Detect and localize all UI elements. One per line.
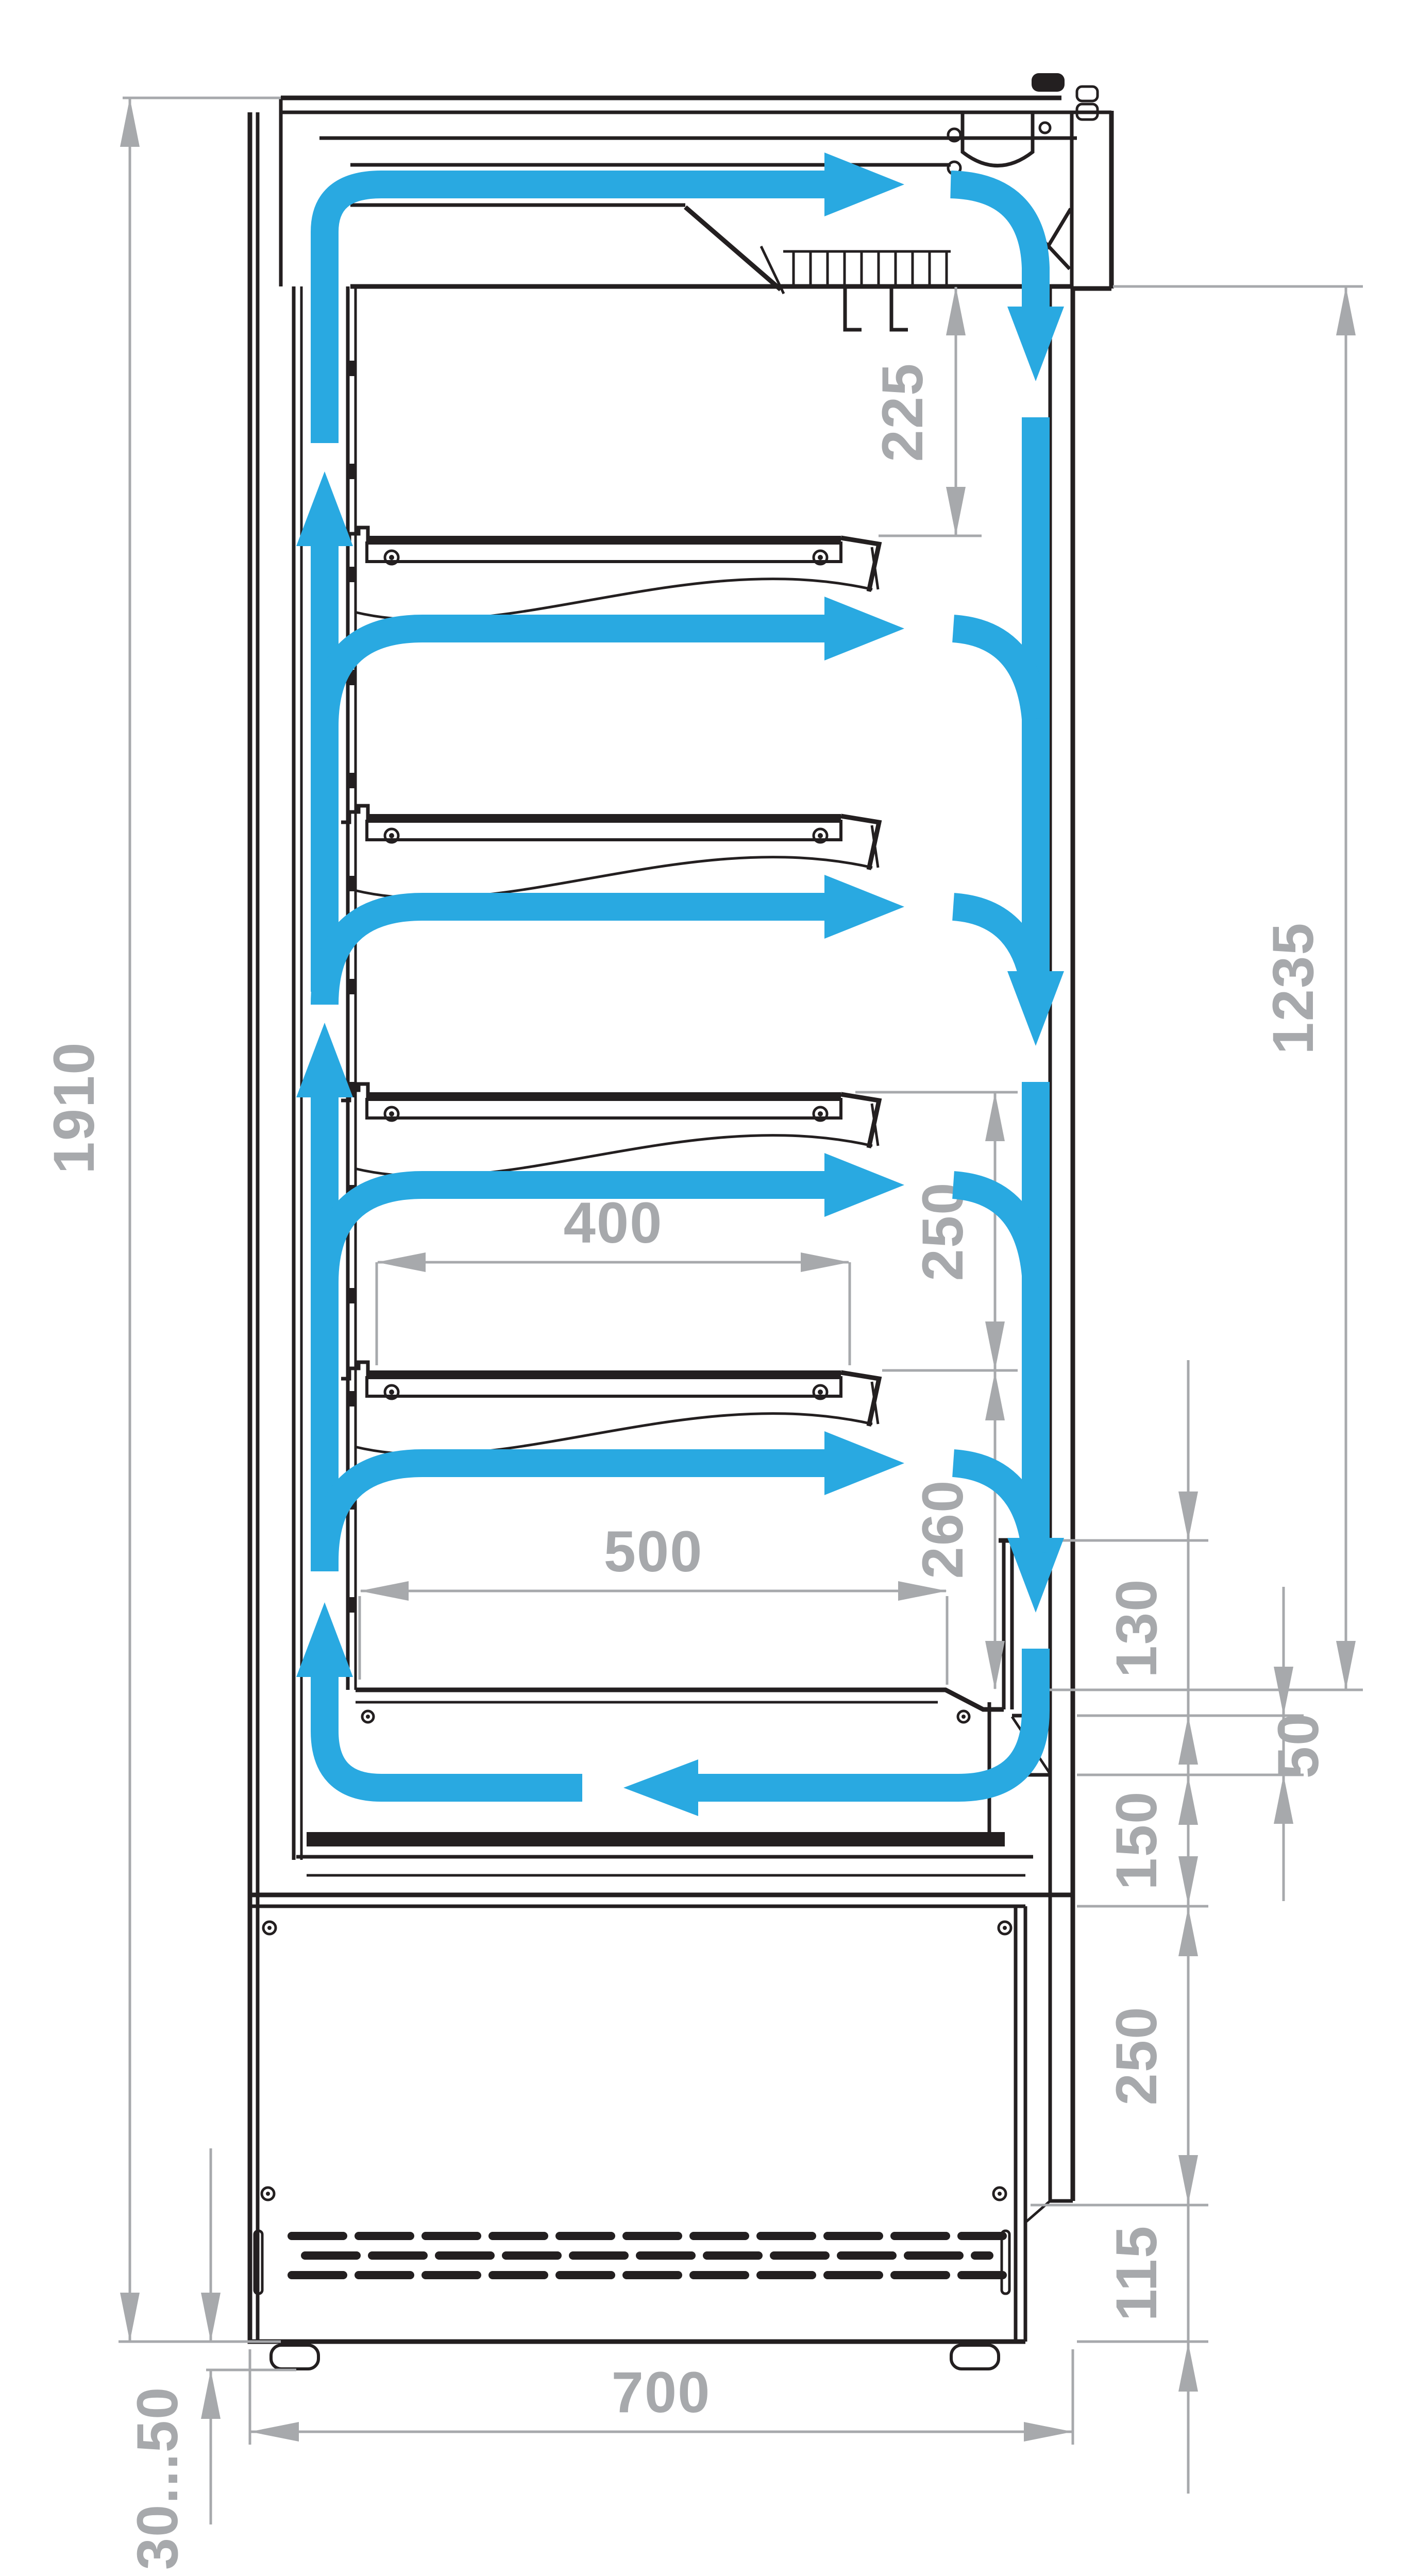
airflow-up-arrow: [296, 1602, 353, 1677]
shelf-cable: [355, 579, 872, 620]
airflow-down-arrow: [1007, 307, 1064, 381]
dim-overall-height: 1910: [42, 98, 281, 2342]
dimension-arrow: [120, 98, 140, 147]
dim-label-base-height: 250: [1104, 2006, 1169, 2106]
dim-label-feet-range: 30...50: [125, 2386, 190, 2570]
dim-label-overall-height: 1910: [42, 1041, 106, 1174]
airflow-right-arrow: [824, 597, 904, 660]
dim-label-front-riser: 130: [1104, 1579, 1169, 1678]
dimension-annotations: 1910 30...50 700 225: [42, 98, 1363, 2570]
dimension-arrow: [801, 1252, 850, 1272]
dim-label-front-sill: 50: [1266, 1713, 1330, 1779]
dim-vent-panel: 115: [1104, 2225, 1198, 2392]
dim-label-well-depth: 500: [604, 1519, 703, 1584]
back-wall-air-channel: [250, 112, 356, 1906]
airflow-curtain-bottom: [698, 1649, 1036, 1788]
dim-label-overall-depth: 700: [612, 2360, 711, 2425]
shelf-1: [341, 528, 879, 620]
dim-bottom-clearance: 260: [910, 1371, 1005, 1690]
dimension-arrow: [898, 1581, 947, 1601]
base-plinth: [250, 1895, 1073, 2369]
dim-label-shelf-depth: 400: [564, 1191, 663, 1255]
dim-front-riser: 130: [1104, 1360, 1198, 2494]
gasket-profile: [1077, 87, 1098, 101]
dim-label-bottom-clearance: 260: [910, 1480, 975, 1579]
shelf-2: [341, 806, 879, 898]
dimension-arrow: [1178, 1907, 1198, 1956]
dim-label-canopy-to-shelf: 225: [870, 363, 935, 462]
shelf-3: [341, 1084, 879, 1176]
dimension-arrow: [250, 2422, 299, 2442]
dim-opening-height: 1235: [1028, 286, 1363, 1690]
airflow-right-arrow: [824, 1153, 904, 1217]
screw-hole: [1040, 123, 1050, 133]
dimension-arrow: [360, 1581, 409, 1601]
dim-label-vent-panel: 115: [1104, 2225, 1169, 2321]
dim-shelf-spacing: 250: [855, 1092, 1018, 1370]
top-corner-cap: [1032, 73, 1065, 92]
drawing-page: 1910 30...50 700 225: [0, 0, 1417, 2576]
dimension-arrow: [985, 1092, 1005, 1141]
dimension-arrow: [1274, 1775, 1293, 1824]
dim-well-depth: 500: [360, 1519, 947, 1685]
dimension-arrow: [946, 487, 966, 536]
dimension-arrow: [201, 2370, 221, 2419]
airflow-left-arrow: [623, 1759, 698, 1816]
dimension-arrow: [946, 286, 966, 335]
adjustable-foot: [951, 2345, 999, 2369]
dimension-arrow: [120, 2293, 140, 2342]
shelf-cable: [355, 1414, 872, 1455]
dim-base-height: 250: [1104, 1907, 1198, 2204]
dimension-arrow: [1178, 1776, 1198, 1825]
front-riser: [999, 1540, 1017, 1709]
dimension-arrow: [985, 1371, 1005, 1420]
basin-floor: [307, 1832, 1005, 1846]
technical-drawing: 1910 30...50 700 225: [0, 0, 1417, 2576]
shelf-cable: [355, 857, 872, 899]
dimension-arrow: [985, 1641, 1005, 1690]
front-outer-frame: [1073, 111, 1111, 289]
air-outlet-honeycomb: [783, 251, 951, 284]
dim-label-opening-height: 1235: [1261, 922, 1325, 1054]
dim-overall-depth: 700: [250, 2349, 1073, 2445]
dimension-arrow: [1178, 1856, 1198, 1905]
shelf-body: [367, 1378, 841, 1396]
airflow-right-arrow: [824, 1431, 904, 1495]
shelf-body: [367, 1099, 841, 1118]
airflow-channel-top-band: [325, 184, 824, 443]
hanger-hook: [891, 287, 908, 330]
shelf-cable: [355, 1136, 872, 1177]
adjustable-foot: [271, 2345, 318, 2369]
shelf-body: [367, 543, 841, 562]
dim-canopy-to-shelf: 225: [870, 286, 982, 536]
airflow-right-arrow: [824, 875, 904, 939]
airflow-return-band: [325, 1677, 582, 1788]
air-deflector-flap: [685, 207, 781, 290]
shelf-4: [341, 1362, 879, 1454]
dim-label-well-section: 150: [1104, 1791, 1169, 1890]
dimension-arrow: [1024, 2422, 1073, 2442]
dimension-arrow: [377, 1252, 426, 1272]
grille-side-slot: [1002, 2231, 1009, 2294]
dimension-arrow: [1178, 2343, 1198, 2392]
basin-rim: [356, 1690, 1004, 1709]
dimension-arrow: [1178, 2155, 1198, 2204]
dimension-arrow: [1336, 286, 1356, 335]
airflow-up-arrow: [296, 1023, 353, 1097]
vent-grille: [292, 2236, 1003, 2275]
dimension-arrow: [1178, 1716, 1198, 1765]
shelf-body: [367, 821, 841, 840]
airflow-up-arrow: [296, 471, 353, 546]
dimension-arrow: [1336, 1641, 1356, 1690]
dim-front-sill: 50: [1266, 1587, 1330, 1901]
hanger-hook: [845, 287, 862, 330]
airflow-right-arrow: [824, 152, 904, 216]
dimension-arrow: [201, 2293, 221, 2342]
cabinet-structure: [250, 73, 1111, 2369]
dim-well-section: 150: [1104, 1776, 1198, 1905]
dimension-arrow: [985, 1321, 1005, 1370]
dim-shelf-depth: 400: [377, 1191, 850, 1365]
base-right-wall: [1016, 1906, 1025, 2342]
dimension-arrow: [1178, 1492, 1198, 1540]
